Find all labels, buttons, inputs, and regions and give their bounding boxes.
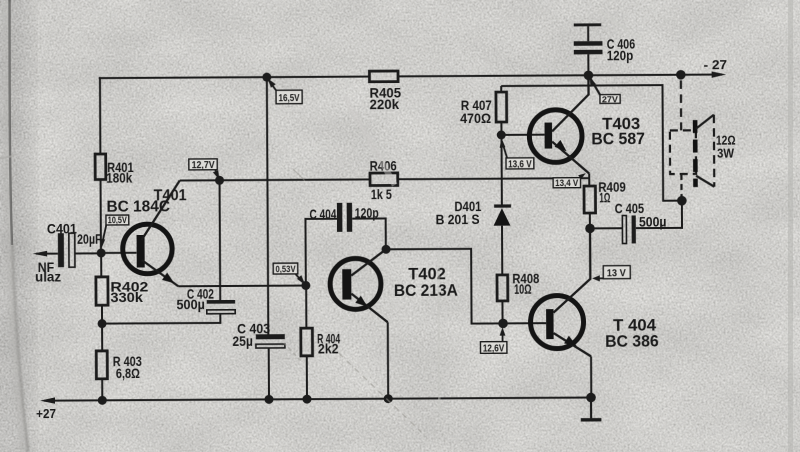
svg-text:2k2: 2k2	[318, 340, 339, 356]
svg-text:B 201 S: B 201 S	[436, 211, 480, 227]
svg-text:500µ: 500µ	[176, 296, 205, 312]
svg-text:BC 386: BC 386	[605, 333, 659, 351]
svg-text:12Ω: 12Ω	[716, 134, 736, 148]
svg-text:12,6V: 12,6V	[483, 343, 505, 354]
svg-text:1k 5: 1k 5	[371, 186, 392, 202]
svg-text:ulaz: ulaz	[35, 270, 61, 285]
svg-text:180k: 180k	[106, 170, 132, 186]
svg-text:20µF: 20µF	[77, 231, 102, 247]
svg-text:C401: C401	[47, 220, 77, 236]
svg-text:3W: 3W	[717, 147, 734, 161]
svg-text:BC 184C: BC 184C	[106, 199, 170, 216]
svg-text:27V: 27V	[602, 94, 618, 104]
svg-text:0,53V: 0,53V	[276, 264, 297, 275]
svg-text:10,5V: 10,5V	[108, 215, 127, 225]
svg-text:1Ω: 1Ω	[599, 189, 610, 205]
svg-text:BC 587: BC 587	[591, 130, 645, 148]
svg-text:13,6 V: 13,6 V	[508, 159, 532, 170]
svg-text:16,5V: 16,5V	[279, 92, 300, 104]
svg-text:6,8Ω: 6,8Ω	[116, 365, 140, 381]
svg-text:13,4 V: 13,4 V	[555, 178, 579, 189]
svg-text:C 404: C 404	[309, 206, 336, 222]
svg-text:25µ: 25µ	[232, 333, 253, 349]
svg-text:+27: +27	[36, 407, 56, 421]
svg-text:220k: 220k	[370, 96, 400, 112]
svg-text:330k: 330k	[110, 289, 143, 305]
svg-text:120p: 120p	[607, 47, 634, 63]
svg-text:13 V: 13 V	[607, 267, 626, 279]
svg-text:12,7V: 12,7V	[192, 160, 215, 171]
svg-text:- 27: - 27	[704, 57, 728, 72]
svg-text:470Ω: 470Ω	[460, 110, 491, 126]
svg-text:BC 213A: BC 213A	[394, 281, 458, 299]
svg-text:10Ω: 10Ω	[514, 281, 532, 297]
